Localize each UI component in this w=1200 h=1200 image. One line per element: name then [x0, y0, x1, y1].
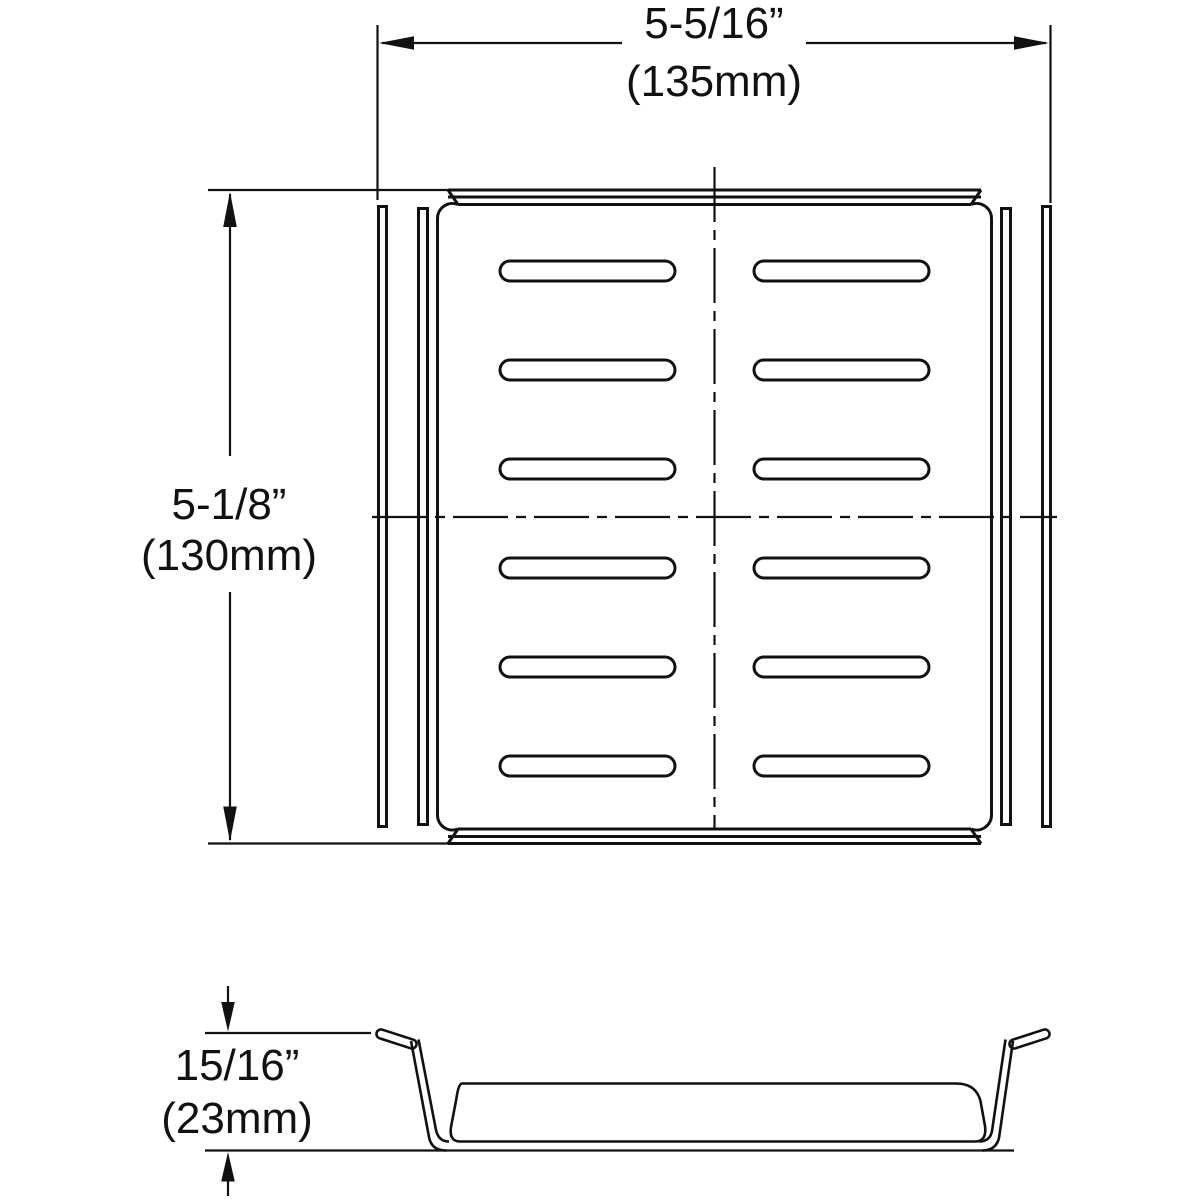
height-dimension-inches: 5-1/8” [172, 480, 287, 529]
width-dimension-metric: (135mm) [626, 57, 802, 106]
sheet-background [0, 0, 1200, 1200]
width-dimension-inches: 5-5/16” [644, 0, 783, 48]
depth-dimension-inches: 15/16” [175, 1041, 300, 1090]
depth-dimension-metric: (23mm) [161, 1094, 313, 1143]
height-dimension-metric: (130mm) [141, 531, 317, 580]
drawing-canvas: 5-5/16” (135mm) 5-1/8” (130mm) [0, 0, 1200, 1200]
drawing-sheet: 5-5/16” (135mm) 5-1/8” (130mm) [0, 0, 1200, 1200]
